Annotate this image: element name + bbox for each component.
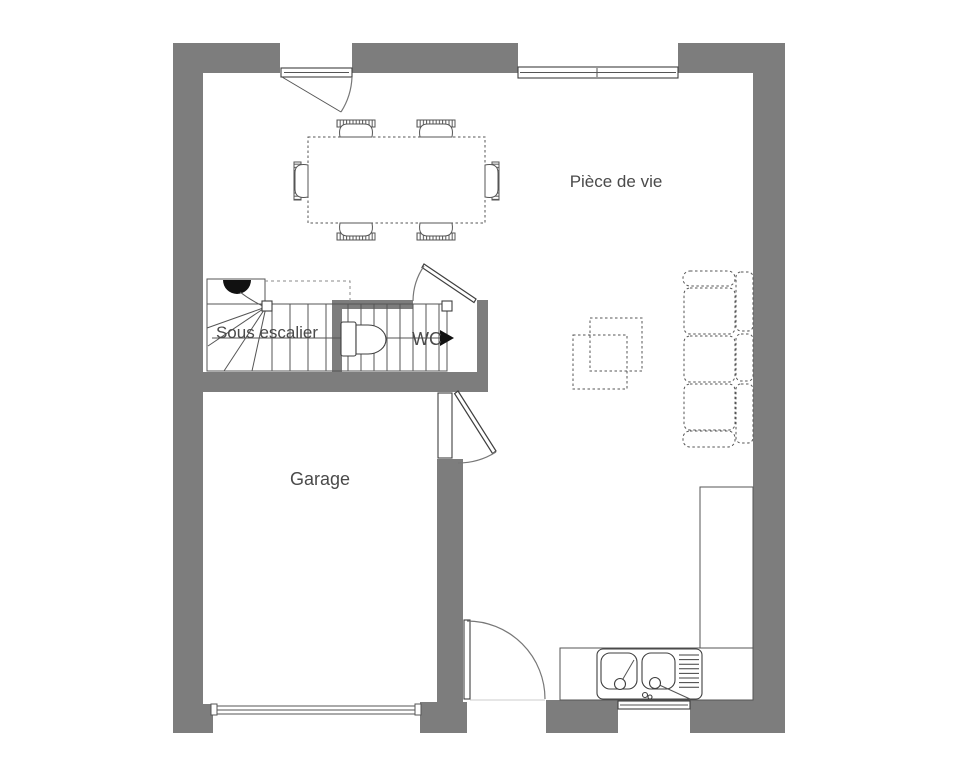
living-room-window: [518, 67, 678, 78]
sofa: [683, 271, 753, 447]
label-under-stairs: Sous escalier: [216, 323, 318, 342]
chair: [337, 223, 375, 240]
kitchen-window: [618, 701, 690, 709]
newel-post: [442, 301, 452, 311]
chair: [485, 162, 499, 200]
chair: [417, 223, 455, 240]
newel-post: [262, 301, 272, 311]
floor-plan-page: Pièce de vie Sous escalier WC Garage: [0, 0, 960, 776]
chair: [337, 120, 375, 137]
garage-door: [211, 704, 421, 715]
label-wc: WC: [412, 329, 442, 349]
kitchen-sink: [597, 649, 702, 699]
floor-plan-drawing: Pièce de vie Sous escalier WC Garage: [0, 0, 960, 776]
label-living-room: Pièce de vie: [570, 172, 663, 191]
chair: [417, 120, 455, 137]
label-garage: Garage: [290, 469, 350, 489]
dining-table: [308, 137, 485, 223]
chair: [294, 162, 308, 200]
